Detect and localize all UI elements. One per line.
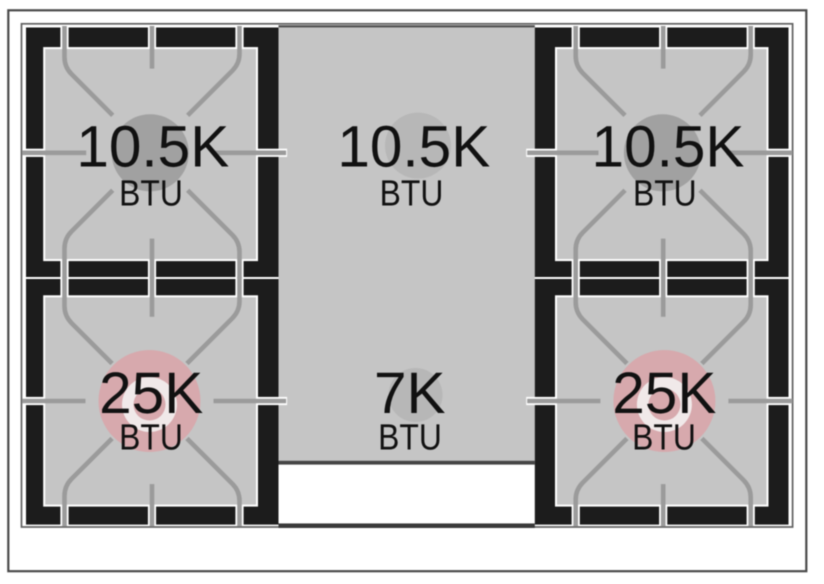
- svg-text:BTU: BTU: [378, 417, 442, 458]
- svg-text:BTU: BTU: [380, 173, 444, 214]
- svg-text:BTU: BTU: [633, 173, 697, 214]
- svg-text:10.5K: 10.5K: [592, 114, 745, 179]
- svg-text:BTU: BTU: [119, 173, 183, 214]
- svg-text:BTU: BTU: [632, 417, 696, 458]
- svg-text:10.5K: 10.5K: [337, 114, 490, 179]
- svg-text:BTU: BTU: [119, 417, 183, 458]
- svg-text:10.5K: 10.5K: [76, 114, 229, 179]
